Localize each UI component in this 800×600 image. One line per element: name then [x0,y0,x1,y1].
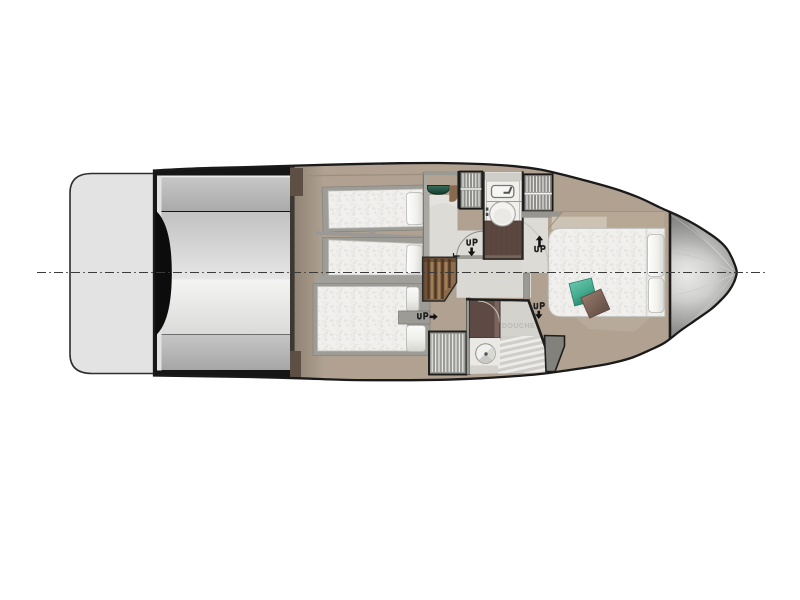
svg-text:DOUCHE: DOUCHE [502,323,535,330]
